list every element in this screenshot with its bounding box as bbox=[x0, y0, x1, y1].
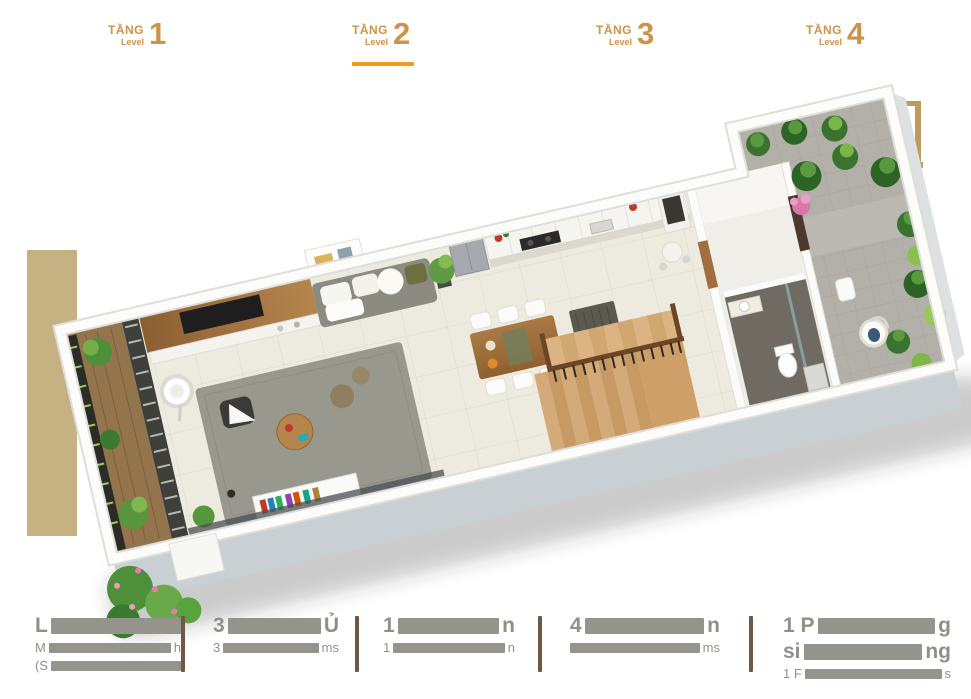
label-fragment-start: L bbox=[35, 614, 48, 638]
redacted-label-block bbox=[51, 618, 181, 634]
tab-sublabel: Level bbox=[121, 37, 144, 47]
footer-stat-4-line-1: ms bbox=[570, 640, 720, 655]
footer-stat-1-line-1: Mh bbox=[35, 640, 181, 655]
tab-level-number: 2 bbox=[393, 18, 410, 49]
tab-level-number: 4 bbox=[847, 18, 864, 49]
footer-stat-4: 4nms bbox=[570, 614, 720, 655]
label-fragment-start: M bbox=[35, 640, 46, 655]
tab-text: TẦNGLevel bbox=[108, 18, 144, 47]
footer-stat-3-line-0: 1n bbox=[383, 614, 515, 637]
tab-text: TẦNGLevel bbox=[352, 18, 388, 47]
label-fragment-end: n bbox=[707, 614, 720, 638]
label-fragment-start: 1 P bbox=[783, 614, 815, 638]
label-fragment-end: ms bbox=[703, 640, 720, 655]
active-tab-indicator bbox=[352, 62, 414, 66]
redacted-label-block bbox=[49, 643, 171, 653]
footer-stat-5: 1 Pgsing1 Fs bbox=[783, 614, 951, 681]
tab-sublabel: Level bbox=[365, 37, 388, 47]
tab-label: TẦNG bbox=[108, 24, 144, 37]
footer-stat-5-line-0: 1 Pg bbox=[783, 614, 951, 637]
label-fragment-start: 1 bbox=[383, 614, 395, 638]
redacted-label-block bbox=[223, 643, 318, 653]
footer-stat-1-line-0: L bbox=[35, 614, 181, 637]
redacted-label-block bbox=[51, 661, 181, 671]
redacted-label-block bbox=[398, 618, 499, 634]
label-fragment-start: 4 bbox=[570, 614, 582, 638]
label-fragment-end: g bbox=[938, 614, 951, 638]
footer-stat-5-line-2: 1 Fs bbox=[783, 666, 951, 681]
tab-level-1[interactable]: TẦNGLevel1 bbox=[108, 18, 166, 49]
label-fragment-end: ms bbox=[322, 640, 339, 655]
footer-stat-3: 1n1n bbox=[383, 614, 515, 655]
redacted-label-block bbox=[228, 618, 321, 634]
tab-sublabel: Level bbox=[819, 37, 842, 47]
label-fragment-end: n bbox=[502, 614, 515, 638]
tab-level-number: 1 bbox=[149, 18, 166, 49]
footer-divider bbox=[538, 616, 542, 672]
label-fragment-end: Ủ bbox=[324, 614, 339, 638]
redacted-label-block bbox=[804, 644, 923, 660]
footer-stat-2-line-0: 3Ủ bbox=[213, 614, 339, 637]
tab-label: TẦNG bbox=[806, 24, 842, 37]
footer-divider bbox=[355, 616, 359, 672]
label-fragment-start: si bbox=[783, 640, 801, 664]
redacted-label-block bbox=[805, 669, 942, 679]
footer-stat-4-line-0: 4n bbox=[570, 614, 720, 637]
tab-level-4[interactable]: TẦNGLevel4 bbox=[806, 18, 864, 49]
redacted-label-block bbox=[570, 643, 700, 653]
footer-divider bbox=[181, 616, 185, 672]
footer-stat-2-line-1: 3ms bbox=[213, 640, 339, 655]
redacted-label-block bbox=[585, 618, 704, 634]
summary-footer: LMh(S3Ủ3ms1n1n4nms1 Pgsing1 Fs bbox=[0, 610, 971, 695]
footer-stat-3-line-1: 1n bbox=[383, 640, 515, 655]
label-fragment-start: 3 bbox=[213, 614, 225, 638]
page: TẦNGLevel1TẦNGLevel2TẦNGLevel3TẦNGLevel4 bbox=[0, 0, 971, 699]
label-fragment-start: 1 bbox=[383, 640, 390, 655]
tab-sublabel: Level bbox=[609, 37, 632, 47]
tab-text: TẦNGLevel bbox=[596, 18, 632, 47]
redacted-label-block bbox=[818, 618, 936, 634]
footer-stat-5-line-1: sing bbox=[783, 640, 951, 663]
label-fragment-end: ng bbox=[925, 640, 951, 664]
label-fragment-start: (S bbox=[35, 658, 48, 673]
floor-plan-svg bbox=[0, 0, 971, 699]
redacted-label-block bbox=[393, 643, 505, 653]
label-fragment-end: h bbox=[174, 640, 181, 655]
floor-plan-image bbox=[0, 0, 971, 699]
tab-label: TẦNG bbox=[596, 24, 632, 37]
footer-stat-1-line-2: (S bbox=[35, 658, 181, 673]
tab-level-3[interactable]: TẦNGLevel3 bbox=[596, 18, 654, 49]
footer-divider bbox=[749, 616, 753, 672]
tab-level-2[interactable]: TẦNGLevel2 bbox=[352, 18, 410, 49]
level-tab-bar: TẦNGLevel1TẦNGLevel2TẦNGLevel3TẦNGLevel4 bbox=[0, 18, 971, 78]
tab-text: TẦNGLevel bbox=[806, 18, 842, 47]
footer-stat-2: 3Ủ3ms bbox=[213, 614, 339, 655]
label-fragment-start: 1 F bbox=[783, 666, 802, 681]
footer-stat-1: LMh(S bbox=[35, 614, 181, 673]
tab-level-number: 3 bbox=[637, 18, 654, 49]
label-fragment-start: 3 bbox=[213, 640, 220, 655]
tab-label: TẦNG bbox=[352, 24, 388, 37]
label-fragment-end: s bbox=[945, 666, 952, 681]
label-fragment-end: n bbox=[508, 640, 515, 655]
